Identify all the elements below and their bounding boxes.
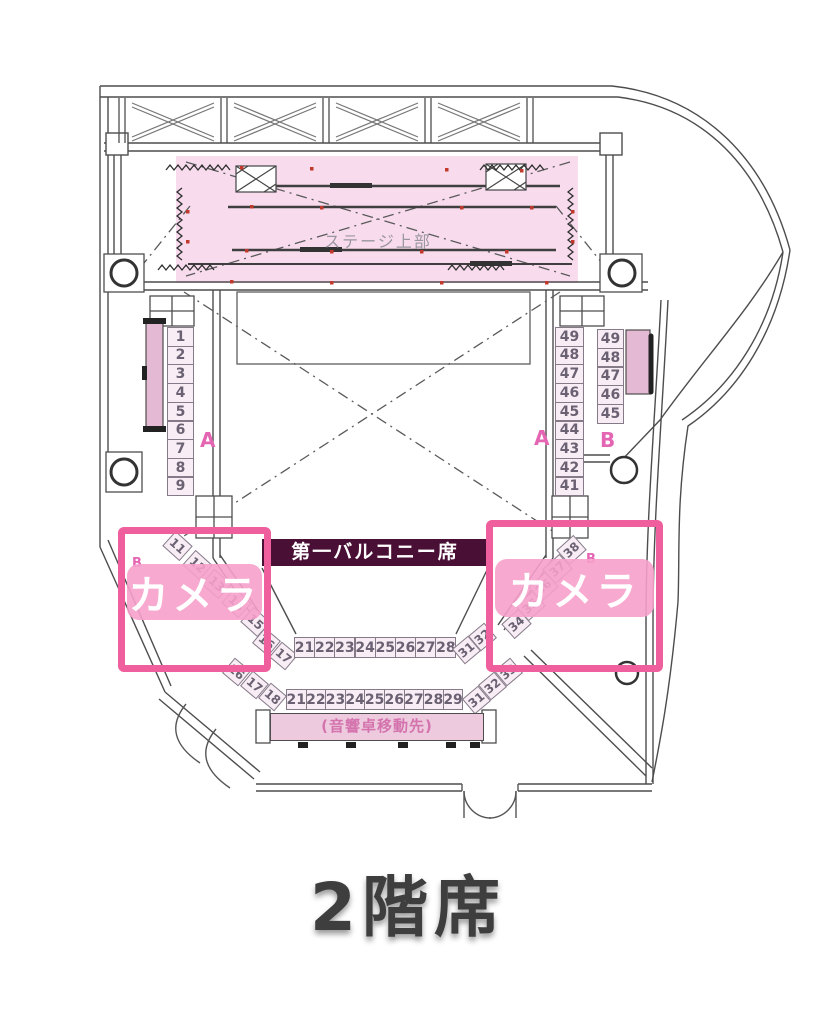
seat: 22 [306, 689, 327, 710]
seat: 5 [167, 402, 194, 422]
camera-label-left: カメラ [127, 564, 262, 620]
seat: 48 [597, 348, 624, 368]
seat: 4 [167, 383, 194, 403]
seat: 3 [167, 364, 194, 384]
seat: 24 [355, 637, 376, 658]
seat: 24 [345, 689, 366, 710]
seat: 28 [423, 689, 444, 710]
seat: 46 [597, 385, 624, 405]
floor-plan-canvas: 1234567894948474645444342414948474645111… [0, 0, 816, 1020]
sound-console-bar: (音響卓移動先) [270, 713, 484, 741]
seat: 26 [384, 689, 405, 710]
seat: 27 [404, 689, 425, 710]
seat: 2 [167, 346, 194, 366]
seat: 7 [167, 439, 194, 459]
seat: 9 [167, 477, 194, 497]
sight-lines [140, 162, 606, 536]
seat: 22 [314, 637, 335, 658]
camera-zone-right: カメラ [486, 520, 663, 672]
seat: 49 [597, 329, 624, 349]
page-title: 2階席 [310, 854, 506, 950]
seat: 41 [555, 477, 584, 497]
stage-batten-lines [188, 186, 572, 264]
first-balcony-banner: 第一バルコニー席 [262, 539, 488, 566]
seat: 42 [555, 458, 584, 478]
stage-batten-bars [300, 183, 512, 266]
hoist-boxes [236, 164, 526, 192]
seat: 23 [334, 637, 355, 658]
seat: 45 [555, 402, 584, 422]
section-label-right-a: A [534, 426, 549, 450]
stage-area [176, 156, 578, 283]
seat: 25 [364, 689, 385, 710]
seat: 47 [597, 367, 624, 387]
seat: 47 [555, 364, 584, 384]
section-label-left-a: A [200, 428, 215, 452]
seat: 23 [325, 689, 346, 710]
seat: 27 [415, 637, 436, 658]
seat: 29 [443, 689, 464, 710]
seat: 43 [555, 439, 584, 459]
seat: 6 [167, 421, 194, 441]
seat: 45 [597, 404, 624, 424]
seat: 1 [167, 327, 194, 347]
seat: 25 [375, 637, 396, 658]
section-label-right-b-column: B [600, 428, 615, 452]
seat: 44 [555, 421, 584, 441]
seat: 21 [294, 637, 315, 658]
stage-upper-label: ステージ上部 [278, 228, 478, 252]
seat: 21 [286, 689, 307, 710]
seat: 49 [555, 327, 584, 347]
seat: 26 [395, 637, 416, 658]
seat: 48 [555, 346, 584, 366]
camera-zone-left: カメラ [118, 527, 271, 672]
camera-label-right: カメラ [495, 559, 654, 617]
seat: 8 [167, 458, 194, 478]
seat: 46 [555, 383, 584, 403]
